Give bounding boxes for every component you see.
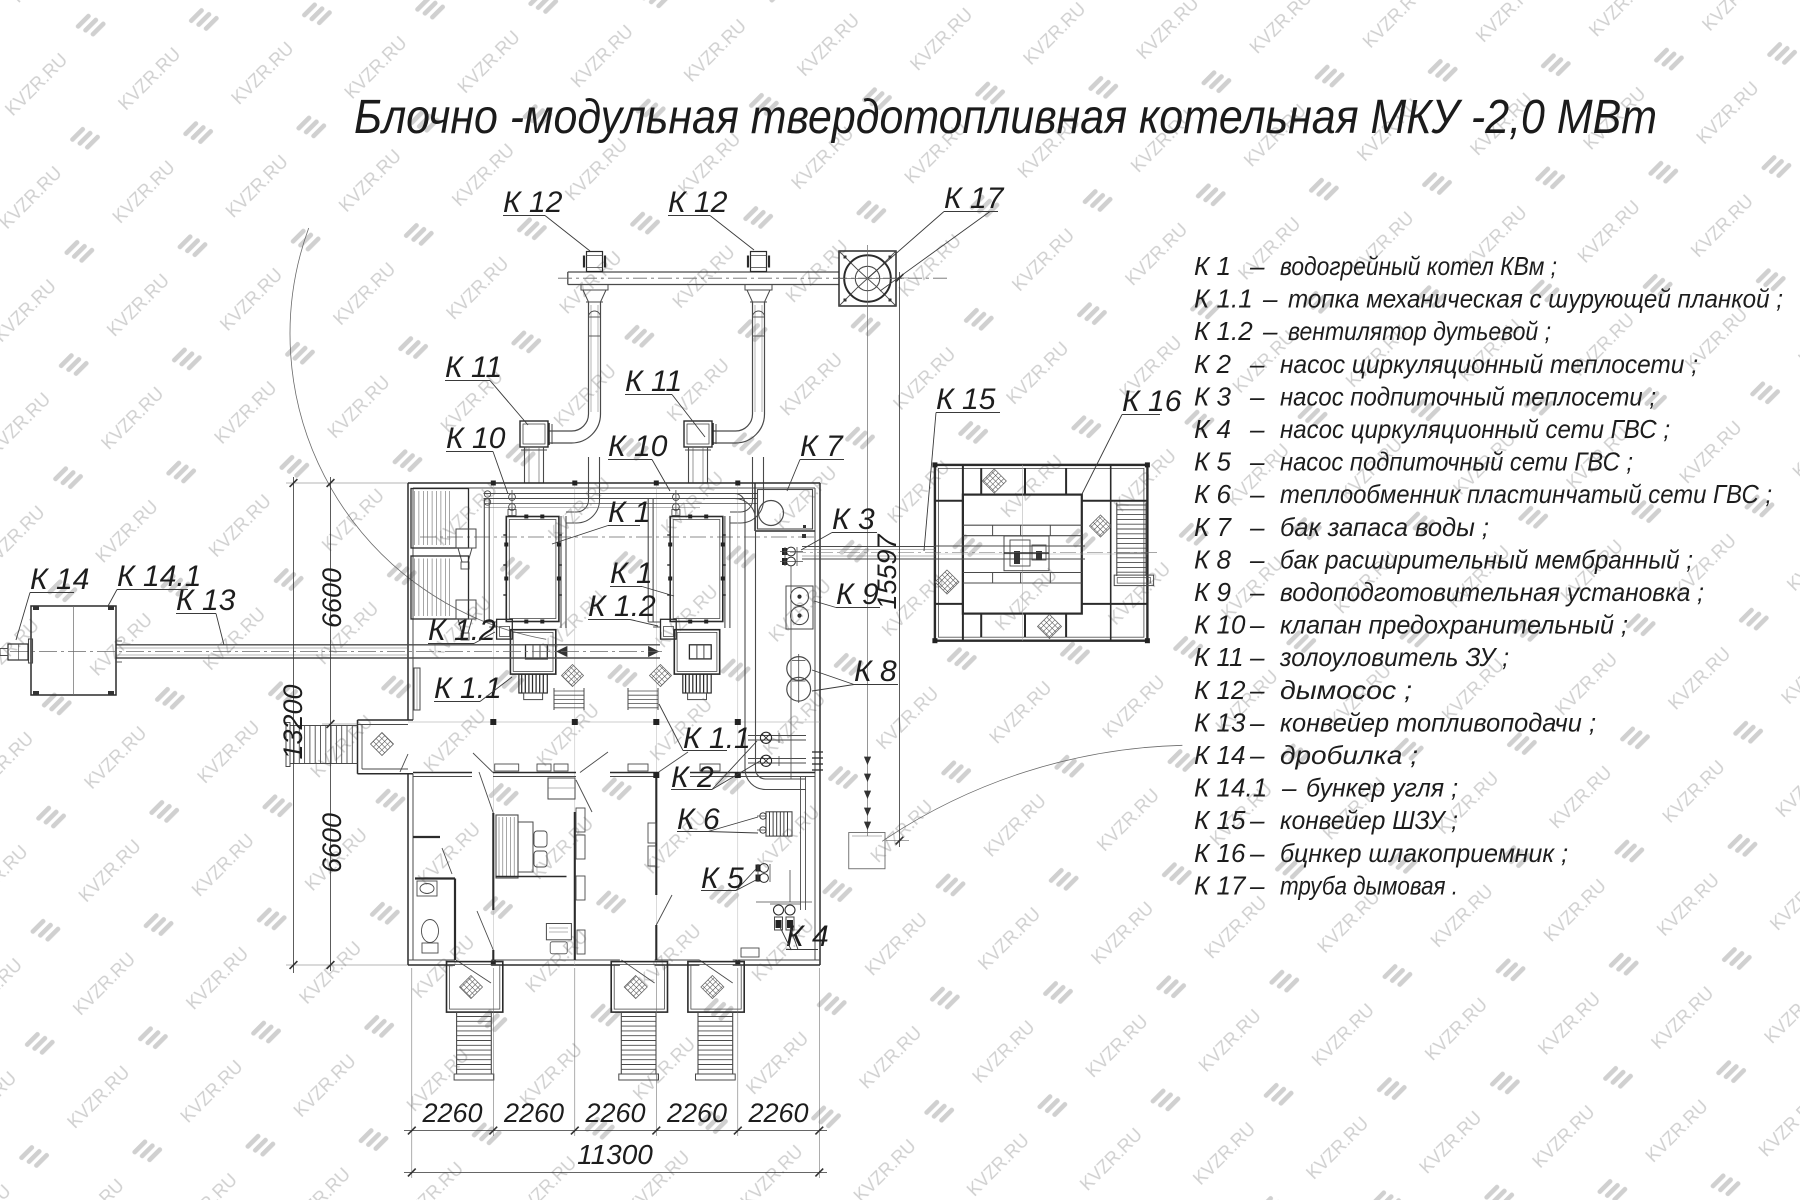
svg-text:К 6: К 6	[1194, 479, 1232, 509]
svg-text:К 9: К 9	[1194, 577, 1231, 607]
svg-text:теплообменник пластинчатый сет: теплообменник пластинчатый сети ГВС ;	[1280, 479, 1772, 509]
svg-text:К 10: К 10	[1194, 610, 1246, 640]
svg-text:К 11: К 11	[445, 351, 502, 384]
svg-text:насос циркуляционный теплосети: насос циркуляционный теплосети ;	[1280, 349, 1698, 379]
svg-text:–: –	[1249, 642, 1265, 672]
svg-text:насос подпиточный сети ГВС ;: насос подпиточный сети ГВС ;	[1280, 447, 1633, 477]
svg-text:К 10: К 10	[608, 430, 668, 463]
svg-text:К 15: К 15	[1194, 805, 1246, 835]
svg-text:бак расширительный мембранный: бак расширительный мембранный ;	[1280, 544, 1693, 574]
svg-text:золоуловитель ЗУ ;: золоуловитель ЗУ ;	[1279, 642, 1509, 672]
svg-text:Блочно -модульная твердотоплив: Блочно -модульная твердотопливная котель…	[354, 91, 1657, 144]
svg-text:топка механическая с шурующей: топка механическая с шурующей планкой ;	[1288, 284, 1783, 314]
svg-text:К 14: К 14	[1194, 740, 1245, 770]
svg-text:К 1: К 1	[610, 557, 653, 590]
svg-text:–: –	[1249, 447, 1265, 477]
svg-text:водоподготовительная установка: водоподготовительная установка ;	[1280, 577, 1704, 607]
svg-text:–: –	[1249, 740, 1265, 770]
svg-text:труба дымовая .: труба дымовая .	[1280, 870, 1458, 900]
svg-text:дробилка ;: дробилка ;	[1280, 740, 1418, 770]
svg-text:–: –	[1249, 479, 1265, 509]
svg-text:бункер угля ;: бункер угля ;	[1306, 773, 1458, 803]
svg-text:конвейер топливоподачи ;: конвейер топливоподачи ;	[1280, 707, 1596, 737]
svg-text:–: –	[1249, 610, 1265, 640]
svg-text:2260: 2260	[421, 1098, 482, 1128]
svg-text:К 1.2: К 1.2	[428, 614, 496, 647]
svg-text:К 1: К 1	[1194, 251, 1231, 281]
svg-text:6600: 6600	[317, 568, 347, 628]
svg-text:насос подпиточный теплосети ;: насос подпиточный теплосети ;	[1280, 381, 1656, 411]
svg-text:К 1: К 1	[608, 496, 651, 529]
svg-text:–: –	[1249, 577, 1265, 607]
svg-text:2260: 2260	[747, 1098, 808, 1128]
svg-text:–: –	[1249, 707, 1265, 737]
svg-text:2260: 2260	[503, 1098, 564, 1128]
svg-text:К 1.2: К 1.2	[588, 590, 656, 623]
svg-text:К 7: К 7	[1194, 512, 1233, 542]
svg-text:дымосос ;: дымосос ;	[1280, 675, 1412, 705]
svg-text:К 10: К 10	[446, 422, 506, 455]
svg-text:2260: 2260	[666, 1098, 727, 1128]
svg-text:К 8: К 8	[1194, 544, 1232, 574]
svg-text:К 16: К 16	[1122, 385, 1182, 418]
svg-text:–: –	[1249, 544, 1265, 574]
svg-text:насос циркуляционный сети ГВС: насос циркуляционный сети ГВС ;	[1280, 414, 1670, 444]
svg-text:К 3: К 3	[832, 503, 875, 536]
svg-text:К 8: К 8	[854, 655, 897, 688]
svg-text:–: –	[1249, 512, 1265, 542]
svg-text:К 11: К 11	[1194, 642, 1244, 672]
svg-text:–: –	[1262, 284, 1278, 314]
svg-text:К 12: К 12	[1194, 675, 1246, 705]
svg-text:К 14: К 14	[30, 563, 89, 596]
svg-text:2260: 2260	[584, 1098, 645, 1128]
svg-text:–: –	[1281, 773, 1297, 803]
svg-text:К 2: К 2	[1194, 349, 1232, 379]
svg-text:К 13: К 13	[1194, 707, 1246, 737]
svg-text:конвейер ШЗУ ;: конвейер ШЗУ ;	[1280, 805, 1458, 835]
svg-text:К 17: К 17	[1194, 870, 1247, 900]
svg-text:–: –	[1249, 675, 1265, 705]
svg-text:–: –	[1249, 805, 1265, 835]
svg-text:водогрейный котел КВм ;: водогрейный котел КВм ;	[1280, 251, 1557, 281]
svg-text:–: –	[1262, 316, 1278, 346]
svg-text:–: –	[1249, 251, 1265, 281]
svg-text:К 15: К 15	[936, 383, 996, 416]
svg-text:К 1.1: К 1.1	[1194, 284, 1253, 314]
svg-text:13200: 13200	[278, 684, 308, 759]
svg-text:–: –	[1249, 870, 1265, 900]
svg-text:К 14.1: К 14.1	[117, 560, 201, 593]
svg-text:–: –	[1249, 414, 1265, 444]
svg-text:К 5: К 5	[1194, 447, 1232, 477]
svg-text:бак запаса воды ;: бак запаса воды ;	[1280, 512, 1489, 542]
svg-text:К 7: К 7	[800, 430, 844, 463]
svg-text:К 4: К 4	[786, 920, 829, 953]
svg-text:К 1.2: К 1.2	[1194, 316, 1253, 346]
svg-text:К 11: К 11	[625, 365, 682, 398]
svg-text:К 12: К 12	[503, 186, 563, 219]
svg-text:К 14.1: К 14.1	[1194, 773, 1267, 803]
svg-text:К 9: К 9	[836, 578, 879, 611]
svg-text:К 12: К 12	[668, 186, 728, 219]
svg-text:–: –	[1249, 349, 1265, 379]
svg-text:вентилятор дутьевой ;: вентилятор дутьевой ;	[1288, 316, 1551, 346]
svg-text:6600: 6600	[317, 813, 347, 873]
svg-text:К 17: К 17	[944, 182, 1005, 215]
svg-text:К 3: К 3	[1194, 381, 1232, 411]
svg-text:К 1.1: К 1.1	[434, 672, 502, 705]
svg-text:11300: 11300	[577, 1139, 653, 1170]
svg-text:К 4: К 4	[1194, 414, 1231, 444]
svg-text:К 16: К 16	[1194, 838, 1246, 868]
svg-text:бцнкер шлакоприемник ;: бцнкер шлакоприемник ;	[1280, 838, 1568, 868]
svg-text:–: –	[1249, 381, 1265, 411]
svg-text:клапан предохранительный ;: клапан предохранительный ;	[1280, 610, 1628, 640]
svg-text:–: –	[1249, 838, 1265, 868]
